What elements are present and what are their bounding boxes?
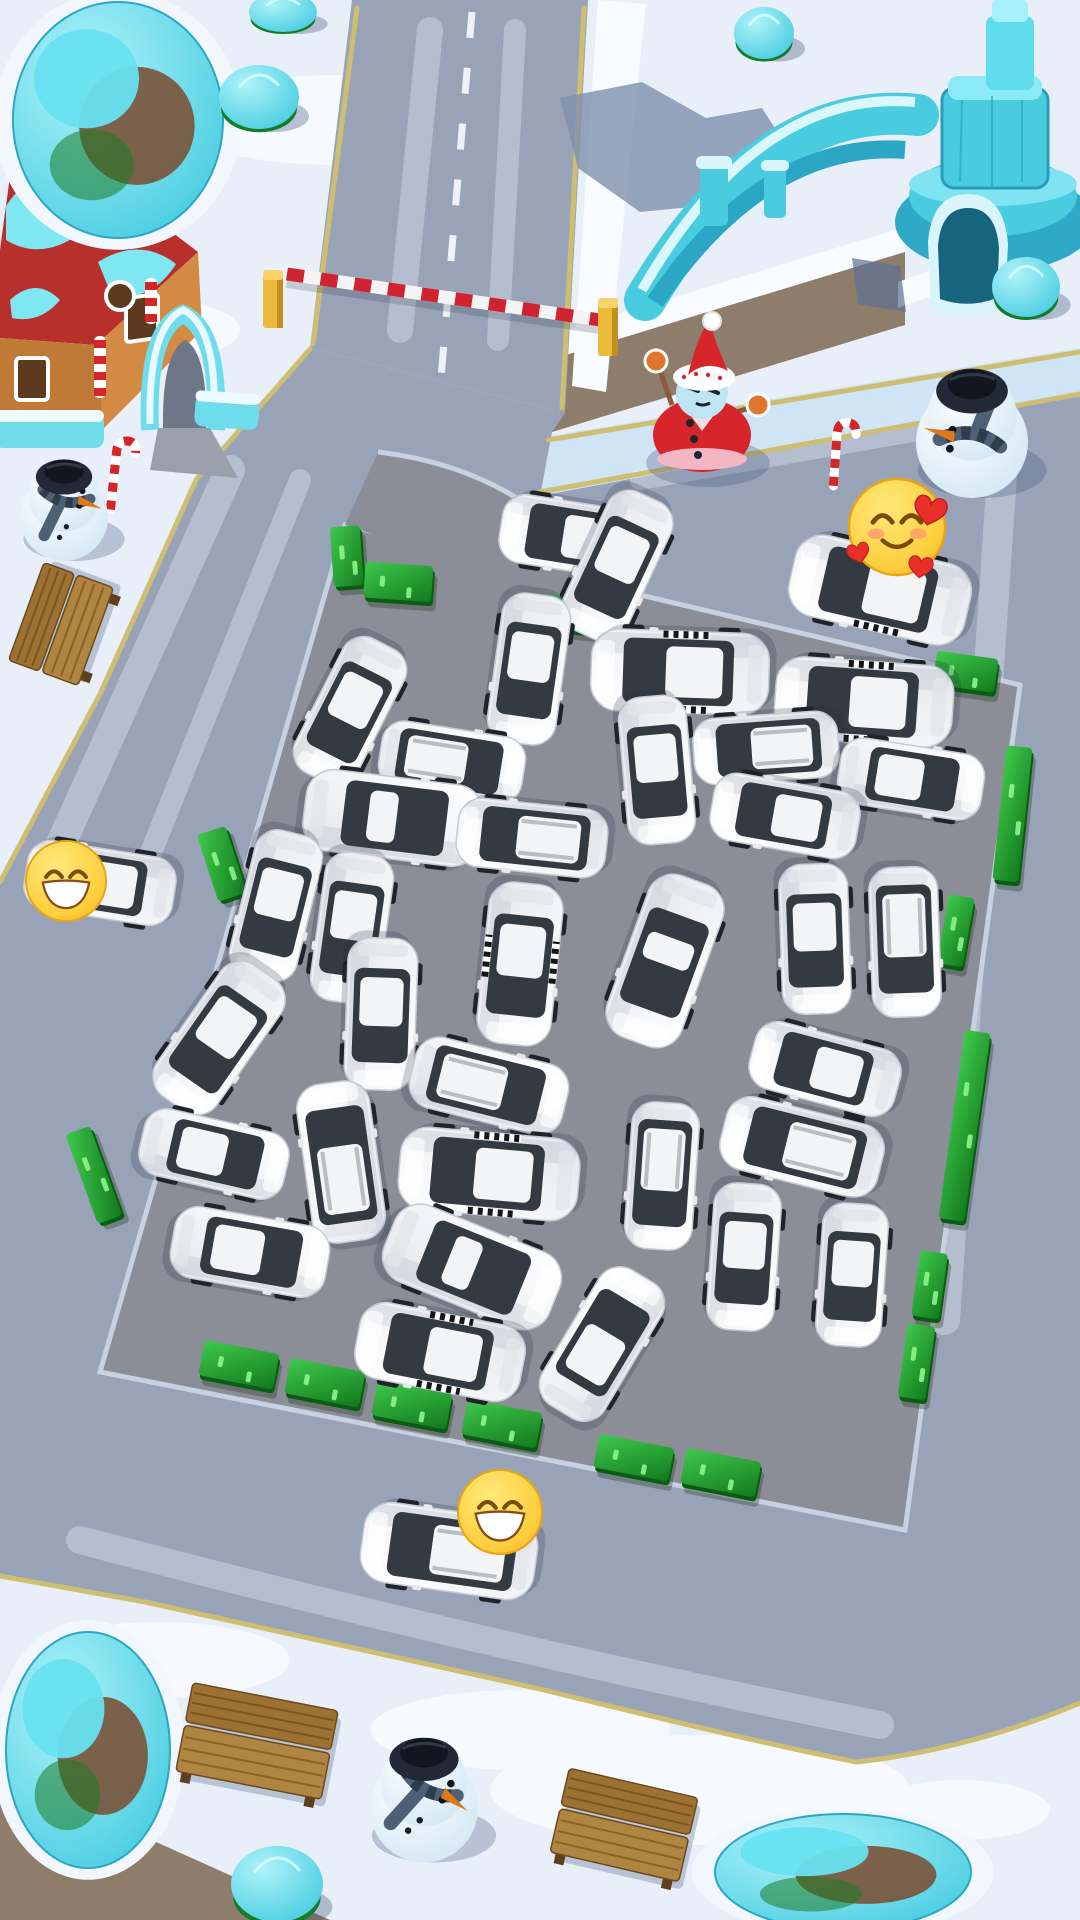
hedge-barrier <box>362 562 438 612</box>
car[interactable] <box>809 1194 895 1349</box>
ice-rock <box>0 1620 185 1880</box>
hedge-barrier <box>330 525 370 596</box>
barrier-post <box>598 298 618 356</box>
car[interactable] <box>700 1174 788 1333</box>
game-screen <box>0 0 1080 1920</box>
car[interactable] <box>618 1093 706 1252</box>
barrier-post <box>263 270 283 328</box>
car[interactable] <box>863 859 947 1019</box>
car[interactable] <box>773 856 857 1016</box>
grinning-face-emoji <box>26 841 106 921</box>
beaming-face-emoji <box>458 1470 542 1554</box>
game-scene <box>0 0 1080 1920</box>
